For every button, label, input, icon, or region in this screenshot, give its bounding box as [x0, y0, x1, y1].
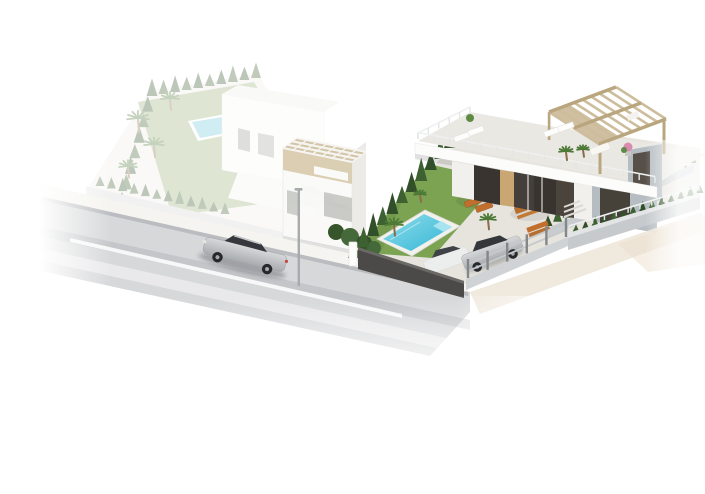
parapet-post — [616, 211, 617, 216]
gate-pillar — [349, 242, 357, 266]
parapet-post — [592, 219, 593, 224]
parapet-post — [639, 204, 640, 209]
parapet-post — [544, 156, 545, 163]
cypress-tree — [170, 75, 180, 92]
parapet-post — [481, 144, 482, 151]
fence-post — [486, 251, 488, 270]
fade-far-right — [645, 140, 705, 300]
palm-trunk — [566, 152, 567, 160]
parapet-post — [465, 141, 466, 148]
cypress-tree — [182, 77, 192, 90]
parapet-post — [591, 165, 592, 172]
cypress-tree — [205, 74, 215, 86]
fence-post — [467, 259, 469, 278]
parapet-post — [575, 162, 576, 169]
parapet-post — [528, 153, 529, 160]
fence-post — [545, 226, 547, 245]
cypress-tree — [159, 80, 169, 94]
palm-frond — [488, 219, 496, 220]
parapet-post — [459, 112, 460, 118]
parapet-post — [433, 135, 434, 142]
parapet-post — [417, 133, 418, 139]
parapet-post — [469, 107, 470, 113]
fence-post — [565, 218, 567, 237]
parapet-post — [580, 222, 581, 227]
cypress-tree — [228, 65, 238, 82]
facade-wood-door — [500, 170, 514, 207]
palm-frond — [420, 194, 426, 195]
parapet-post — [607, 168, 608, 175]
scene-svg — [0, 0, 705, 494]
cypress-tree — [193, 72, 203, 88]
palm-frond — [154, 144, 164, 145]
roof-plant — [466, 114, 474, 122]
glazing-reflection — [514, 172, 534, 210]
parapet-post — [438, 123, 439, 129]
parapet-post — [428, 128, 429, 134]
fade-left — [0, 150, 112, 390]
palm-frond — [138, 118, 149, 119]
parapet-post — [639, 174, 640, 181]
cypress-tree — [239, 67, 249, 80]
palm-trunk — [583, 150, 584, 157]
parapet-post — [627, 208, 628, 213]
palm-frond — [566, 151, 573, 152]
parapet-post — [512, 150, 513, 157]
fade-right-road — [455, 296, 705, 411]
render-canvas — [0, 0, 705, 494]
palm-frond — [583, 149, 589, 150]
palm-trunk — [394, 225, 395, 236]
fence-post — [526, 234, 528, 253]
parapet-post — [560, 159, 561, 166]
parapet-post — [568, 226, 569, 231]
parapet-post — [496, 147, 497, 154]
palm-trunk — [170, 99, 171, 110]
palm-frond — [128, 166, 137, 167]
parapet-post — [623, 171, 624, 178]
cypress-tree — [251, 62, 261, 78]
facade-glazing — [474, 165, 500, 205]
pink-plant-foliage — [621, 147, 627, 153]
palm-frond — [170, 98, 179, 99]
palm-trunk — [488, 220, 489, 229]
parapet-post — [449, 138, 450, 145]
parapet-post — [604, 215, 605, 220]
tower-shutter — [287, 190, 299, 216]
cypress-tree — [216, 70, 226, 84]
neighbour-window — [258, 133, 274, 158]
parapet-post — [449, 117, 450, 123]
palm-trunk — [420, 195, 421, 202]
facade-white-wall — [452, 161, 474, 200]
palm-trunk — [128, 167, 129, 178]
palm-trunk — [154, 145, 155, 157]
fence-post — [506, 243, 508, 262]
palm-trunk — [138, 119, 139, 132]
palm-frond — [394, 224, 403, 225]
neighbour-window — [238, 128, 250, 152]
